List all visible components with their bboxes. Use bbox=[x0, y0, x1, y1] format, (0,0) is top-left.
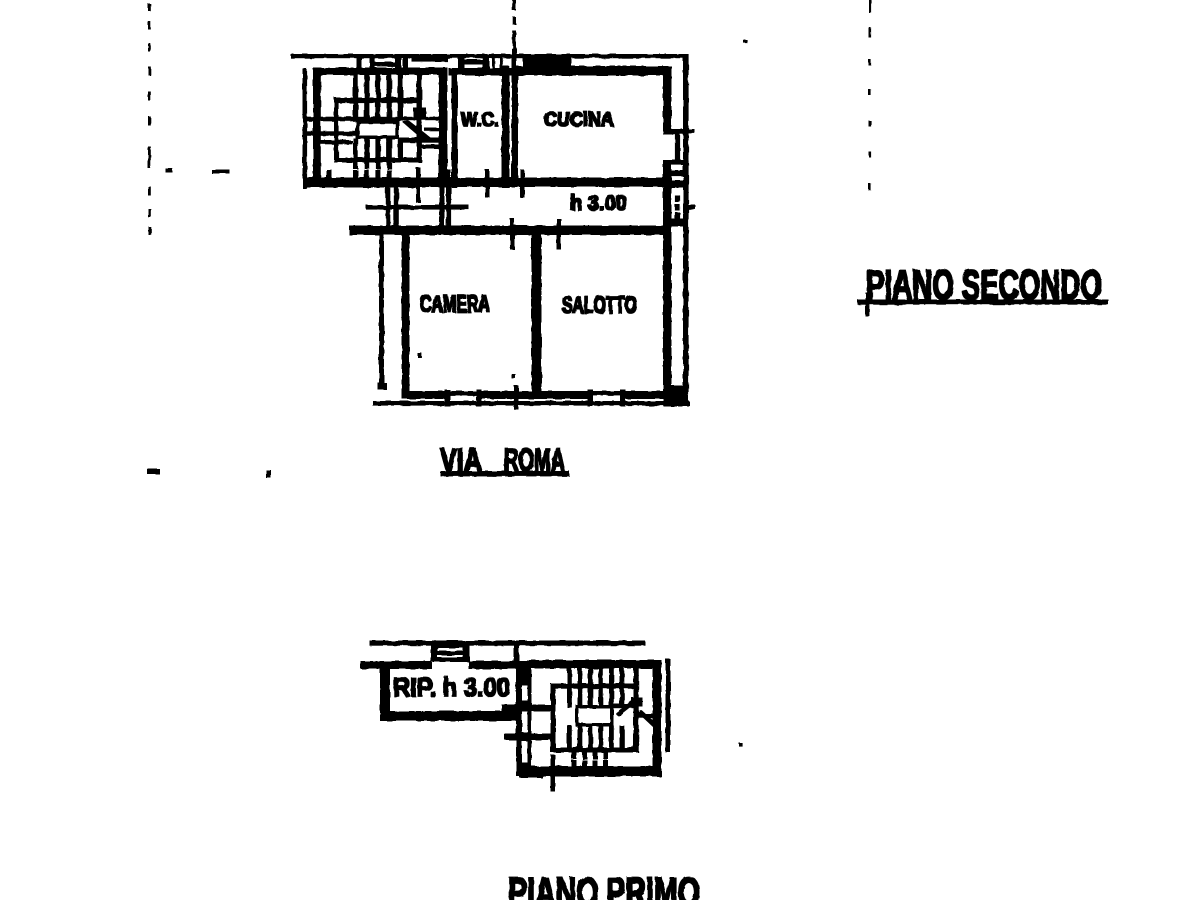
svg-text:RIP. h 3.00: RIP. h 3.00 bbox=[393, 672, 510, 702]
svg-text:h 3.00: h 3.00 bbox=[570, 192, 627, 215]
svg-text:PIANO PRIMO: PIANO PRIMO bbox=[508, 869, 700, 900]
svg-text:CAMERA: CAMERA bbox=[420, 291, 490, 318]
svg-text:CUCINA: CUCINA bbox=[544, 109, 614, 131]
svg-text:W.C.: W.C. bbox=[461, 110, 499, 131]
svg-text:SALOTTO: SALOTTO bbox=[562, 292, 637, 319]
